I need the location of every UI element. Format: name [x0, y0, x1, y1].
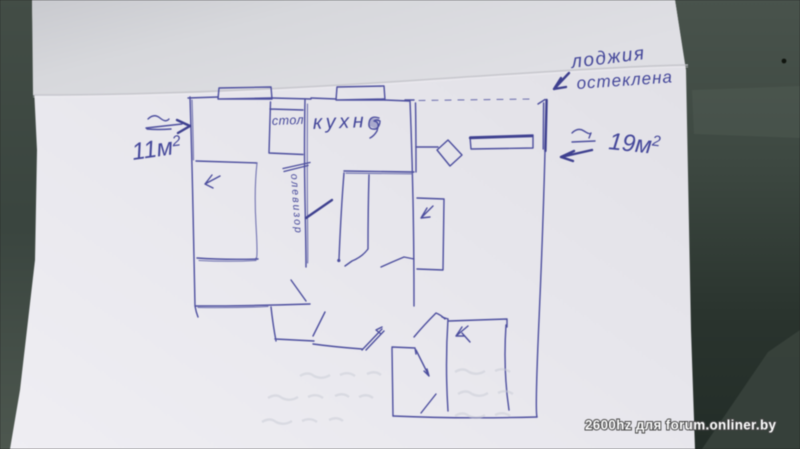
svg-text:стол: стол	[272, 113, 305, 128]
svg-text:2600hz для forum.onliner.by: 2600hz для forum.onliner.by	[585, 418, 776, 433]
svg-text:кухн: кухн	[312, 110, 367, 134]
